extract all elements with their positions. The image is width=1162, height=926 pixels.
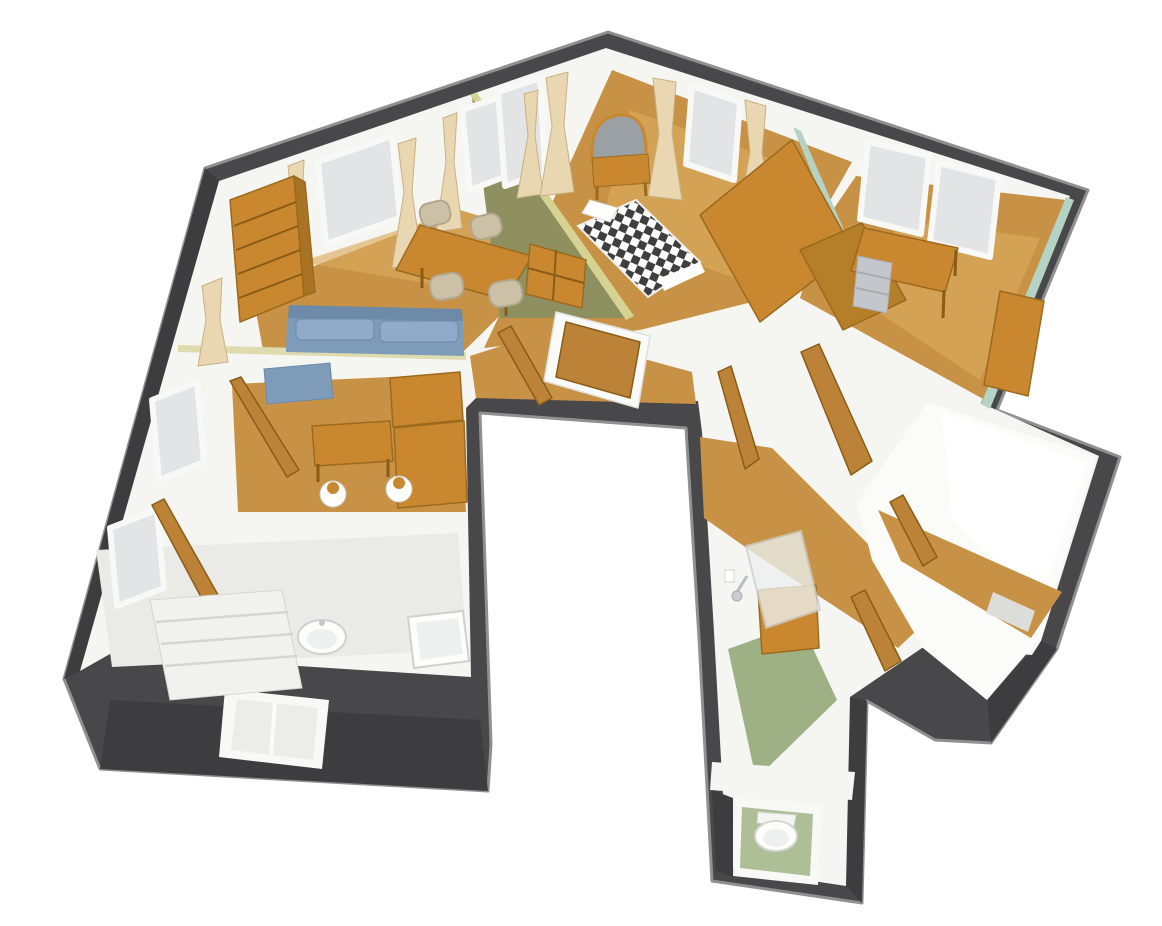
sofa-cushion-right [380,321,458,342]
bathtub-inner [416,618,463,660]
sofa-cushion-left [296,319,374,340]
shower-head [732,591,742,601]
bedroom-window-2 [686,86,740,180]
shower-soap-tray [725,570,734,582]
sofa [286,305,464,356]
dressing-table-leg-right [645,182,646,196]
kitchen-blue-counter [264,363,333,404]
office-drawer-unit [853,256,892,313]
dressing-table-body [592,154,650,187]
basin-faucet [319,620,325,626]
wall-basin-bowl [307,629,337,649]
office-window-2 [930,163,999,257]
drawer-unit-body [853,256,892,313]
staircase [150,590,302,700]
kitchen-cabinet-upper [390,372,463,427]
floorplan-canvas [0,0,1162,926]
stool-1-seat [327,482,339,494]
office-window-1 [860,142,929,234]
kitchen-table-top [312,421,393,466]
left-wall-window-2 [110,510,164,606]
floorplan-render [0,0,1162,926]
left-wall-window-1 [152,382,204,480]
stool-2-seat [393,477,405,489]
toilet-seat [763,829,789,847]
